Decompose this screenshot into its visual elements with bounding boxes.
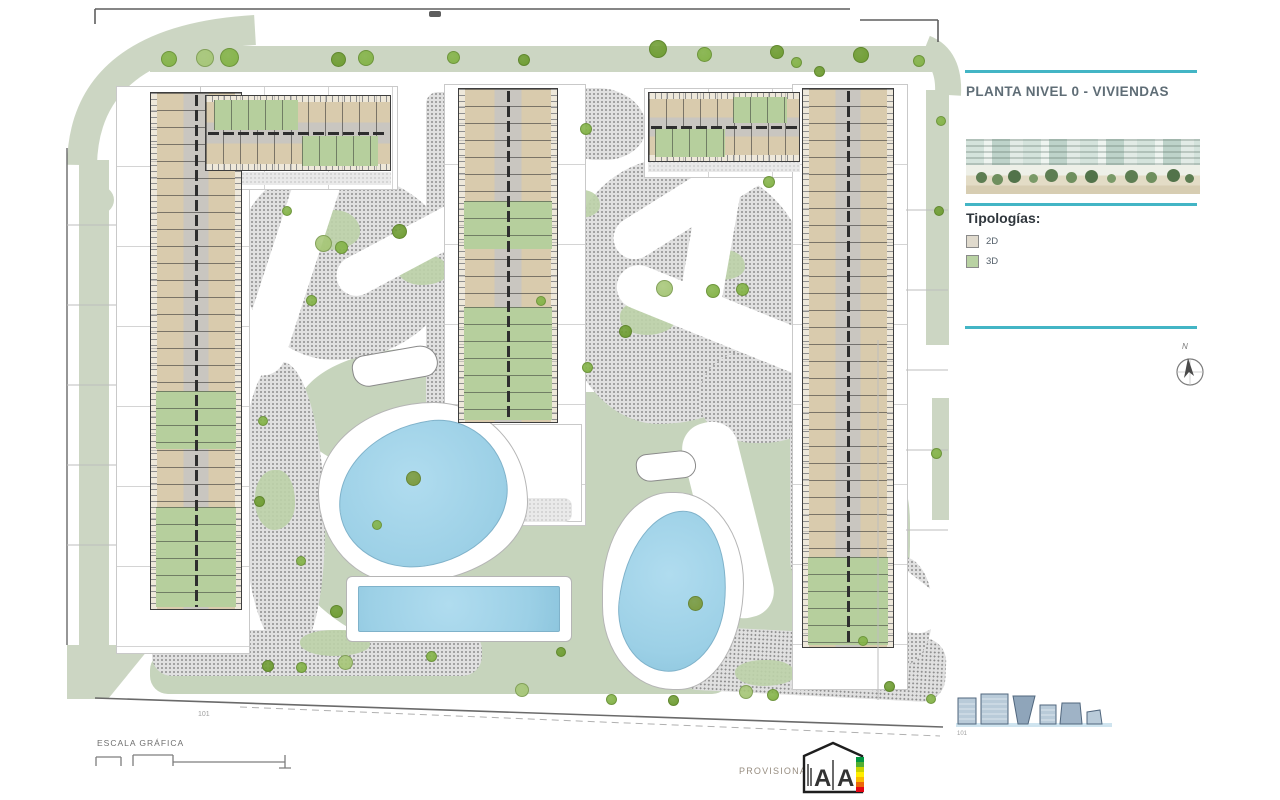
divider-bottom xyxy=(965,326,1197,329)
energy-letter-right: A xyxy=(837,765,854,792)
render-thumbnail xyxy=(966,122,1200,194)
car-marker xyxy=(429,11,441,17)
energy-rating-logo: A A xyxy=(800,740,866,796)
scale-bar-label: ESCALA GRÁFICA xyxy=(97,738,184,748)
legend-item-2d: 2D xyxy=(966,235,998,248)
plan-sheet: 101 PLANTA NIVEL 0 - VIVIENDAS Tipología… xyxy=(0,0,1280,800)
elevation-sketches: 101 xyxy=(956,690,1136,736)
legend-label-2d: 2D xyxy=(986,236,998,247)
typologies-heading: Tipologías: xyxy=(966,210,1040,226)
energy-letter-left: A xyxy=(814,765,831,792)
site-boundary xyxy=(0,0,1280,800)
legend-swatch-3d xyxy=(966,255,979,268)
legend-item-3d: 3D xyxy=(966,255,998,268)
north-compass-icon: N xyxy=(1166,338,1214,396)
render-vegetation xyxy=(976,172,987,183)
compass-n-label: N xyxy=(1182,342,1188,351)
scale-bar xyxy=(95,750,305,772)
divider-middle xyxy=(965,203,1197,206)
legend-label-3d: 3D xyxy=(986,256,998,267)
plan-caption: 101 xyxy=(198,711,210,718)
divider-top xyxy=(965,70,1197,73)
legend-swatch-2d xyxy=(966,235,979,248)
page-title: PLANTA NIVEL 0 - VIVIENDAS xyxy=(966,84,1206,99)
elevations-caption: 101 xyxy=(957,731,968,736)
render-buildings xyxy=(966,139,1200,165)
